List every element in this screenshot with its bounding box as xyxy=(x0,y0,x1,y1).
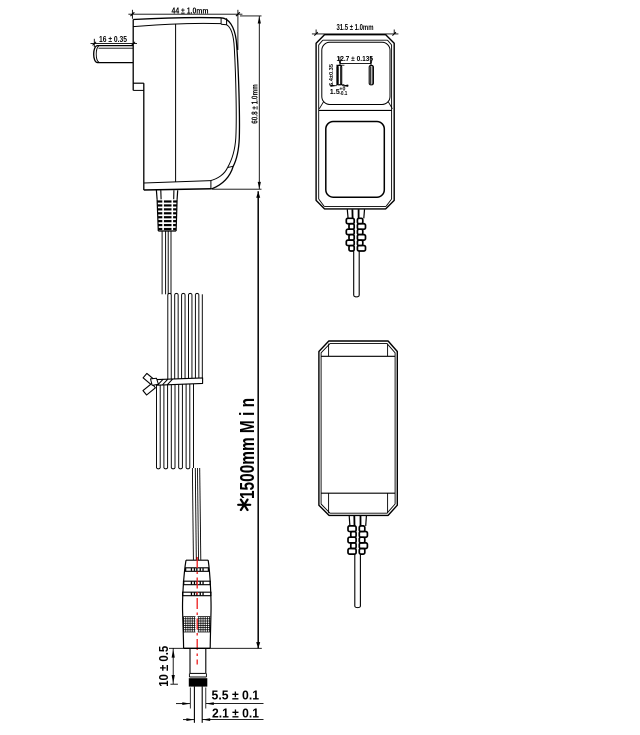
svg-text:2.1 ± 0.1: 2.1 ± 0.1 xyxy=(212,706,259,720)
svg-text:16 ± 0.35: 16 ± 0.35 xyxy=(99,35,128,44)
svg-text:5.5 ± 0.1: 5.5 ± 0.1 xyxy=(212,689,260,703)
svg-text:6.4±0.35: 6.4±0.35 xyxy=(329,63,335,86)
svg-text:12.7 ± 0.135: 12.7 ± 0.135 xyxy=(337,56,374,63)
svg-text:44 ± 1.0mm: 44 ± 1.0mm xyxy=(172,6,209,16)
svg-text:1500mm M i n: 1500mm M i n xyxy=(237,398,259,499)
svg-text:1.5: 1.5 xyxy=(330,87,340,96)
svg-text:10 ± 0.5: 10 ± 0.5 xyxy=(156,646,171,687)
svg-text:-0.1: -0.1 xyxy=(339,91,347,97)
svg-text:60.8 ± 1.0mm: 60.8 ± 1.0mm xyxy=(250,84,259,124)
svg-text:31.5 ± 1.0mm: 31.5 ± 1.0mm xyxy=(337,22,374,32)
